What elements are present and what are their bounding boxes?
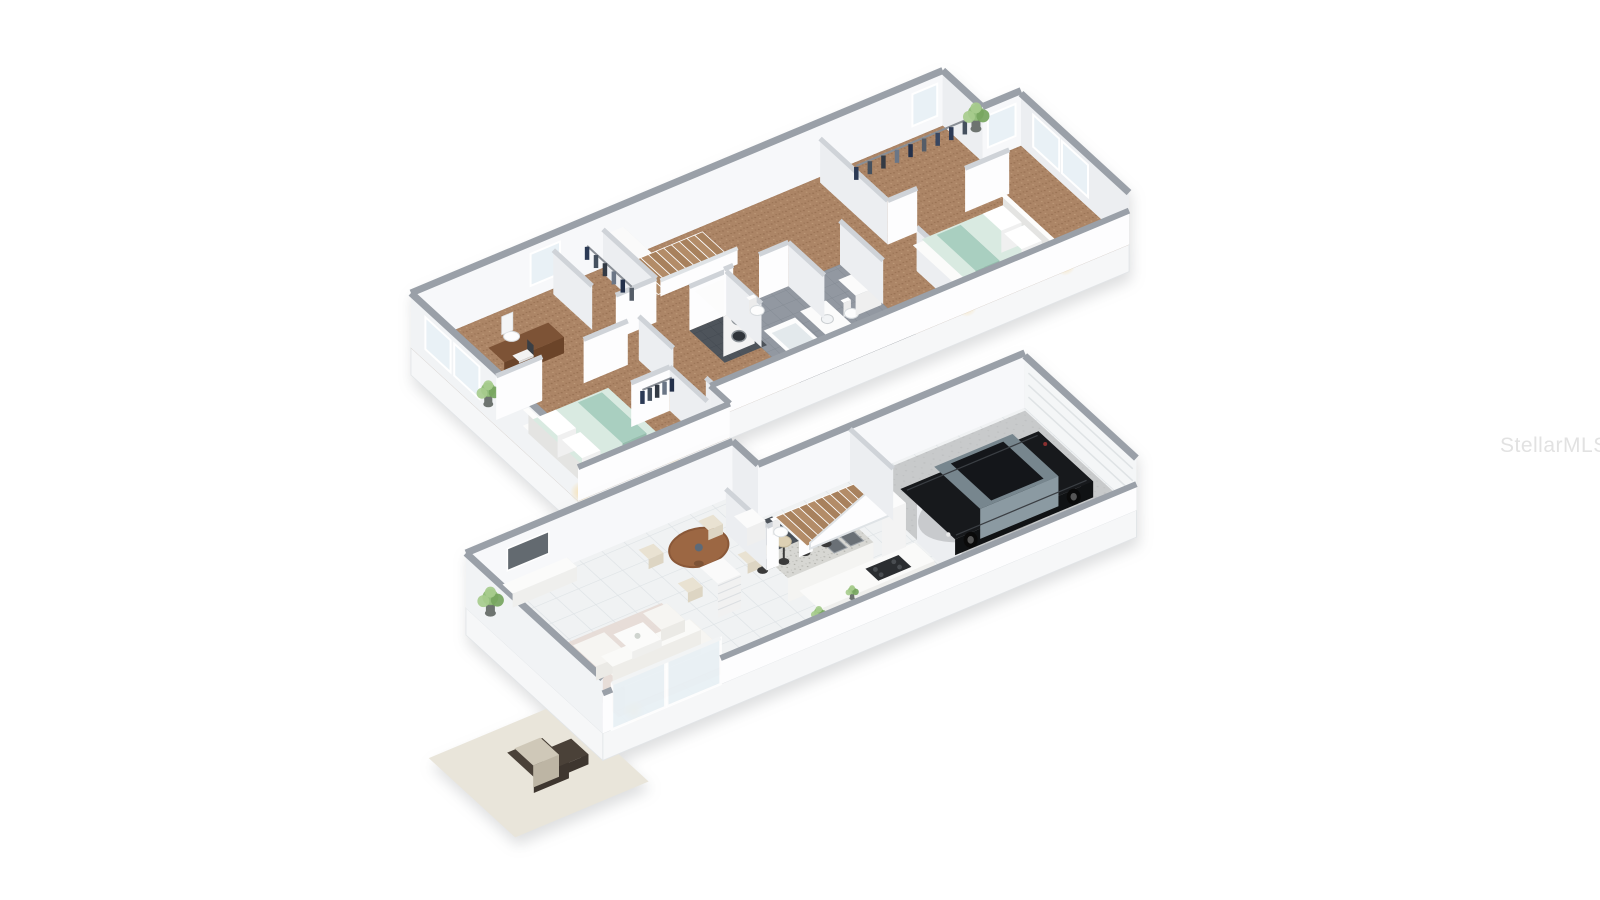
floor-plan-render [0,0,1600,900]
floor-plan-image: StellarMLS [0,0,1600,900]
watermark: StellarMLS [1500,434,1600,458]
